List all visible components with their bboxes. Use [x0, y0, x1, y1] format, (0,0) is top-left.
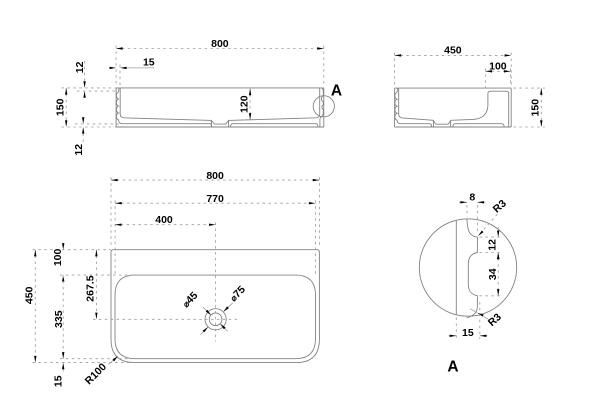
svg-text:120: 120: [238, 95, 250, 113]
svg-text:12: 12: [73, 144, 85, 156]
svg-text:8: 8: [469, 192, 475, 204]
svg-text:12: 12: [74, 61, 86, 73]
svg-text:800: 800: [211, 38, 229, 50]
svg-text:335: 335: [53, 310, 65, 328]
svg-text:100: 100: [489, 61, 507, 73]
svg-text:34: 34: [487, 268, 499, 280]
svg-text:400: 400: [155, 214, 173, 226]
svg-text:450: 450: [444, 45, 462, 57]
svg-text:450: 450: [23, 286, 35, 304]
svg-text:150: 150: [54, 98, 66, 116]
svg-text:15: 15: [53, 375, 65, 387]
svg-text:150: 150: [529, 99, 541, 117]
svg-text:15: 15: [462, 327, 474, 339]
svg-text:15: 15: [143, 56, 155, 68]
svg-text:770: 770: [206, 193, 224, 205]
svg-text:12: 12: [487, 239, 499, 251]
svg-text:A: A: [447, 359, 458, 376]
svg-text:800: 800: [206, 170, 224, 182]
svg-text:100: 100: [52, 248, 64, 266]
svg-text:A: A: [331, 82, 342, 99]
svg-text:267.5: 267.5: [84, 275, 96, 301]
